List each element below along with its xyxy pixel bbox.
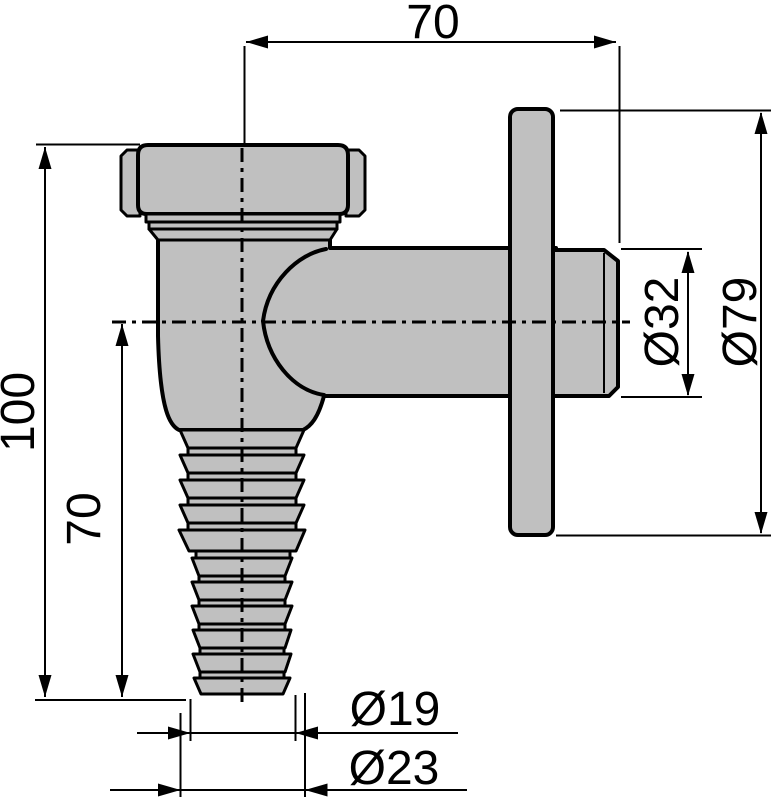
arrowhead [116, 324, 129, 346]
dim-hose-length: 70 [58, 324, 129, 697]
dim-hose-barb-diameter-label: Ø23 [349, 742, 440, 795]
fitting-body [121, 109, 618, 694]
arrowhead [755, 512, 768, 534]
dim-top-width-label: 70 [406, 0, 459, 49]
arrowhead [305, 784, 328, 797]
arrowhead [682, 251, 695, 273]
dim-overall-height-label: 100 [0, 372, 45, 452]
dim-hose-end-diameter: Ø19 [137, 683, 458, 741]
wall-flange [510, 109, 553, 535]
body-outline [158, 238, 556, 430]
dim-hose-length-label: 70 [58, 492, 111, 545]
dim-flange-diameter-label: Ø79 [714, 277, 767, 368]
arrowhead [246, 36, 268, 49]
arrowhead [594, 36, 616, 49]
arrowhead [296, 727, 319, 740]
arrowhead [755, 112, 768, 134]
fitting-drawing-svg: 70 100 70 Ø32 Ø79 [0, 0, 772, 800]
arrowhead [682, 374, 695, 396]
arrowhead [158, 784, 181, 797]
dim-outlet-diameter: Ø32 [621, 249, 702, 397]
technical-drawing-canvas: 70 100 70 Ø32 Ø79 [0, 0, 772, 800]
dim-hose-end-diameter-label: Ø19 [350, 683, 441, 736]
arrowhead [116, 675, 129, 697]
dim-outlet-diameter-label: Ø32 [636, 277, 689, 368]
arrowhead [39, 147, 52, 169]
arrowhead [168, 727, 191, 740]
arrowhead [39, 675, 52, 697]
